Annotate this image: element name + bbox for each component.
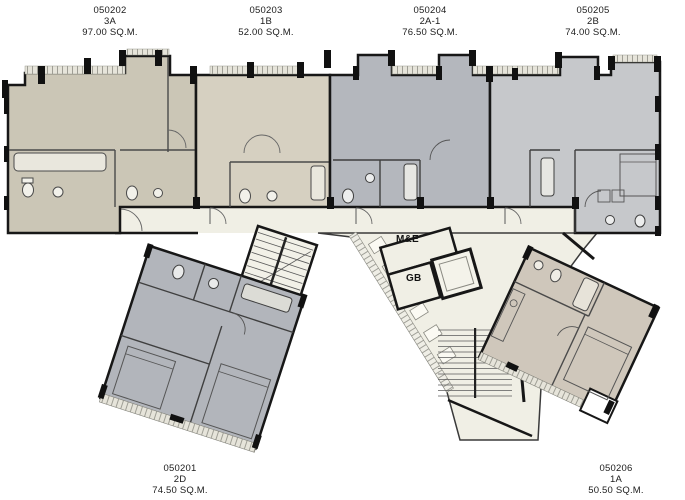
sink [366, 174, 375, 183]
sink [53, 187, 63, 197]
unit-area: 76.50 SQ.M. [365, 27, 495, 38]
unit-number: 050203 [201, 5, 331, 16]
unit-number: 050204 [365, 5, 495, 16]
elevator-shaft [432, 249, 481, 298]
unit-1b-area [196, 66, 330, 207]
bathtub [14, 153, 106, 171]
unit-type: 2B [528, 16, 658, 27]
unit-type: 1A [551, 474, 681, 485]
bathtub [541, 158, 554, 196]
toilet [23, 183, 34, 197]
unit-3a-area [8, 49, 196, 233]
unit-type: 2A-1 [365, 16, 495, 27]
toilet [343, 189, 354, 203]
floor-plan-svg [0, 0, 685, 500]
unit-type: 1B [201, 16, 331, 27]
unit-area: 52.00 SQ.M. [201, 27, 331, 38]
unit-number: 050206 [551, 463, 681, 474]
sink [267, 191, 277, 201]
toilet [240, 189, 251, 203]
toilet [127, 186, 138, 200]
unit-number: 050201 [115, 463, 245, 474]
floor-plan-page: 050202 3A 97.00 SQ.M. 050203 1B 52.00 SQ… [0, 0, 685, 500]
me-room-label: M&E [396, 234, 419, 245]
toilet [635, 215, 645, 227]
unit-area: 50.50 SQ.M. [551, 485, 681, 496]
unit-label-050203: 050203 1B 52.00 SQ.M. [201, 5, 331, 38]
unit-number: 050202 [45, 5, 175, 16]
unit-number: 050205 [528, 5, 658, 16]
sink [606, 216, 615, 225]
unit-label-050206: 050206 1A 50.50 SQ.M. [551, 463, 681, 496]
unit-area: 97.00 SQ.M. [45, 27, 175, 38]
unit-2b-area [473, 55, 660, 233]
sink [154, 189, 163, 198]
unit-label-050205: 050205 2B 74.00 SQ.M. [528, 5, 658, 38]
unit-area: 74.50 SQ.M. [115, 485, 245, 496]
unit-label-050202: 050202 3A 97.00 SQ.M. [45, 5, 175, 38]
gb-room-label: GB [406, 273, 421, 284]
unit-label-050204: 050204 2A-1 76.50 SQ.M. [365, 5, 495, 38]
bathtub [404, 164, 417, 200]
unit-label-050201: 050201 2D 74.50 SQ.M. [115, 463, 245, 496]
unit-type: 3A [45, 16, 175, 27]
unit-area: 74.00 SQ.M. [528, 27, 658, 38]
bathtub [311, 166, 325, 200]
unit-type: 2D [115, 474, 245, 485]
